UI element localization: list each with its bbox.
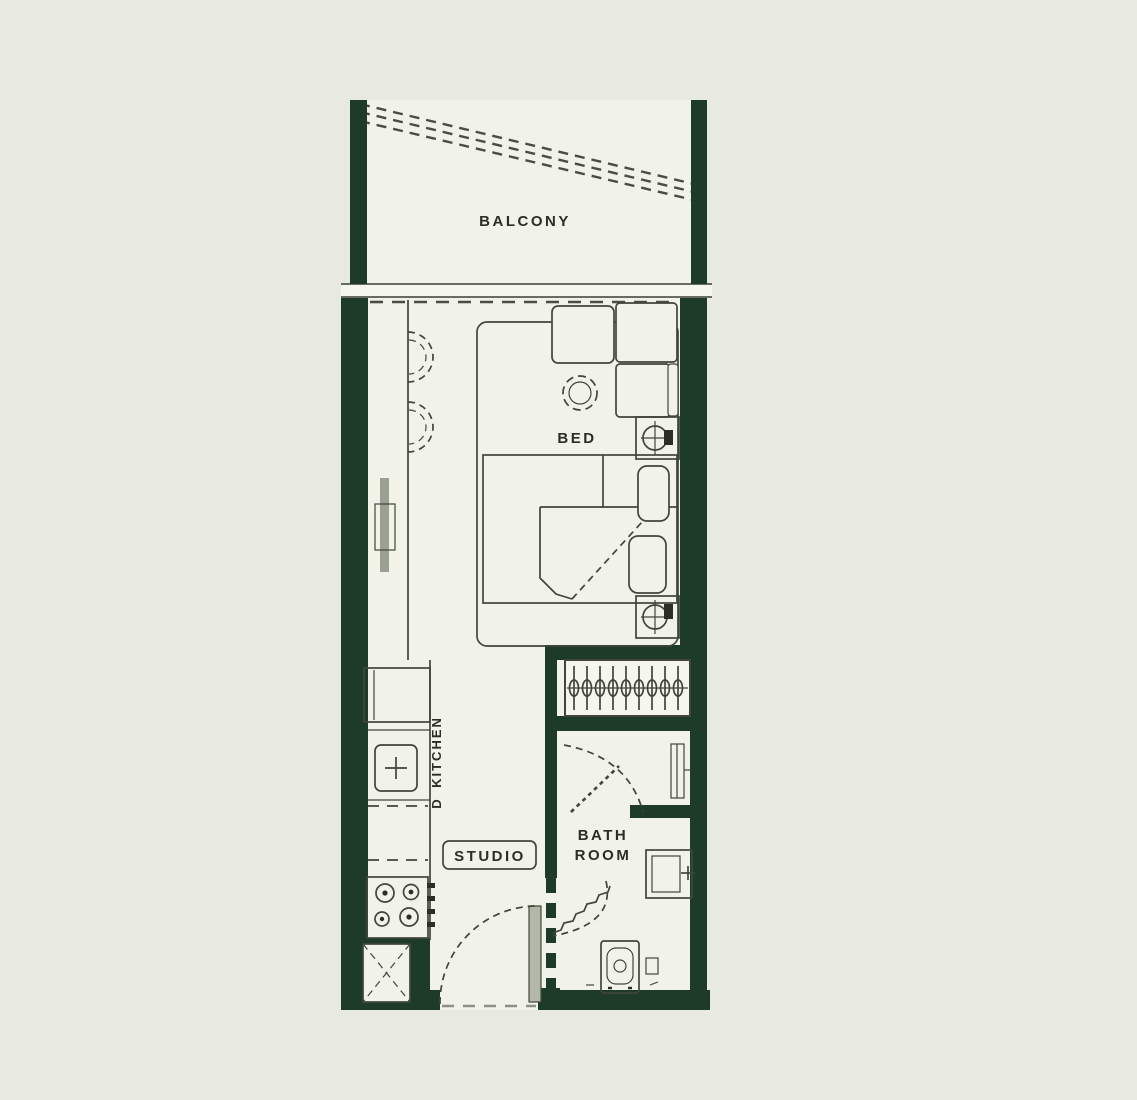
- wardrobe-hangers-icon: [565, 660, 690, 716]
- floor-plan: BALCONY: [0, 0, 1137, 1100]
- wall-bath-partition: [545, 645, 557, 878]
- bathroom-label-line2: ROOM: [575, 847, 632, 864]
- wall-left: [341, 298, 368, 1010]
- wall-entry-stub-left: [425, 990, 440, 1010]
- shaft-x-icon: [363, 944, 410, 1002]
- wall-below-wardrobe: [553, 716, 690, 731]
- kitchen-label: KITCHEN: [429, 716, 444, 788]
- wall-balcony-right: [691, 100, 707, 284]
- balcony-sill: [341, 284, 712, 297]
- bed-label: BED: [557, 430, 596, 447]
- bathroom-label-line1: BATH: [578, 827, 629, 844]
- pillow-icon: [638, 466, 669, 521]
- balcony-label: BALCONY: [479, 213, 571, 230]
- floor-plan-canvas: BALCONY: [0, 0, 1137, 1100]
- balcony-floor: [360, 100, 696, 290]
- kitchen-marker-label: D: [429, 797, 444, 808]
- wall-bath-stub: [630, 805, 690, 818]
- pillow-icon: [629, 536, 666, 593]
- studio-label: STUDIO: [454, 848, 526, 865]
- wall-above-wardrobe: [553, 645, 690, 660]
- wall-balcony-left: [350, 100, 367, 284]
